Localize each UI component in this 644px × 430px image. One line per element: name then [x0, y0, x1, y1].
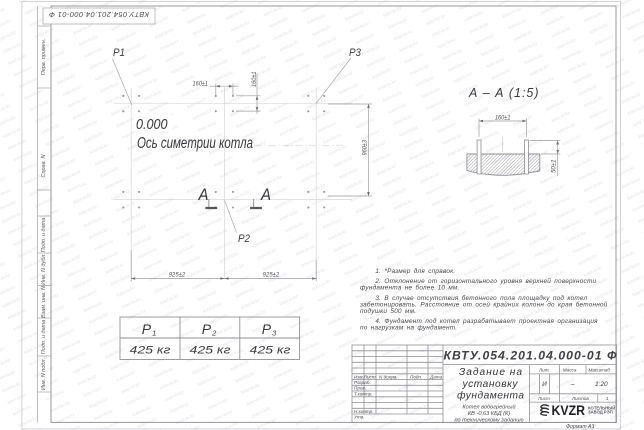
- svg-text:Масса: Масса: [563, 368, 577, 373]
- svg-text:925±2: 925±2: [263, 272, 280, 279]
- svg-text:Инв. N подл.: Инв. N подл.: [41, 358, 47, 390]
- svg-text:1: 1: [606, 396, 609, 401]
- svg-text:50±1: 50±1: [551, 159, 558, 173]
- svg-text:Подп.: Подп.: [410, 374, 422, 379]
- svg-text:P1: P1: [113, 47, 125, 59]
- svg-text:КВТУ.054.201.04.000-01 Ф: КВТУ.054.201.04.000-01 Ф: [444, 348, 617, 362]
- svg-text:425 кг: 425 кг: [130, 345, 172, 357]
- svg-text:0.000: 0.000: [136, 116, 168, 133]
- svg-text:Взам. инв. N: Взам. инв. N: [41, 286, 47, 318]
- svg-text:P3: P3: [349, 47, 362, 59]
- svg-text:Пров.: Пров.: [354, 386, 366, 391]
- svg-text:Утв.: Утв.: [354, 415, 364, 420]
- svg-text:160±1: 160±1: [251, 71, 258, 87]
- svg-text:1:20: 1:20: [595, 381, 608, 388]
- svg-text:KVZR: KVZR: [552, 403, 586, 418]
- svg-text:Формат А3: Формат А3: [566, 424, 594, 430]
- svg-text:Лит.: Лит.: [538, 368, 550, 373]
- svg-text:И: И: [542, 381, 547, 388]
- svg-text:1. *Размер для справок.: 1. *Размер для справок.: [375, 267, 455, 275]
- svg-text:Подп. и дата: Подп. и дата: [41, 320, 47, 354]
- svg-text:160±1: 160±1: [193, 80, 209, 87]
- svg-text:Котел водогрейный: Котел водогрейный: [462, 404, 515, 411]
- svg-text:Изм.Лист: Изм.Лист: [354, 374, 376, 379]
- svg-text:Задание на: Задание на: [459, 367, 522, 378]
- svg-text:фундамента не более 10 мм.: фундамента не более 10 мм.: [360, 284, 460, 292]
- svg-text:Инв. N дубл.: Инв. N дубл.: [41, 253, 47, 285]
- svg-text:–: –: [570, 381, 575, 388]
- svg-text:Разраб.: Разраб.: [354, 380, 371, 385]
- svg-text:160±1: 160±1: [495, 114, 511, 121]
- svg-text:А: А: [260, 186, 271, 204]
- svg-text:Перв. примен.: Перв. примен.: [41, 39, 47, 76]
- svg-text:425 кг: 425 кг: [250, 345, 292, 357]
- svg-text:925±2: 925±2: [169, 272, 186, 279]
- svg-text:КВ -0,63 КБД (К): КВ -0,63 КБД (К): [468, 411, 510, 417]
- svg-text:подушки 500 мм.: подушки 500 мм.: [360, 307, 416, 315]
- svg-text:Масштаб: Масштаб: [589, 368, 611, 373]
- svg-text:Листов: Листов: [571, 396, 589, 401]
- svg-text:Т.контр.: Т.контр.: [354, 392, 373, 397]
- svg-text:N докум.: N докум.: [379, 374, 398, 379]
- svg-text:Дата: Дата: [429, 374, 443, 379]
- svg-text:Подп. и дата: Подп. и дата: [41, 218, 47, 252]
- svg-text:установку: установку: [462, 379, 519, 390]
- svg-text:А: А: [198, 186, 209, 204]
- svg-text:Справ. N: Справ. N: [41, 154, 47, 177]
- svg-text:425 кг: 425 кг: [190, 345, 232, 357]
- svg-text:КВТУ.054.201.04.000-01 Ф: КВТУ.054.201.04.000-01 Ф: [49, 10, 149, 19]
- svg-text:по нагрузкам на фундамент.: по нагрузкам на фундамент.: [360, 324, 457, 332]
- svg-text:Ось симетрии котла: Ось симетрии котла: [137, 135, 253, 152]
- svg-text:960±3: 960±3: [361, 140, 368, 156]
- svg-text:А – А (1:5): А – А (1:5): [468, 86, 539, 100]
- svg-text:P2: P2: [238, 233, 250, 245]
- svg-text:Лист: Лист: [537, 396, 550, 401]
- svg-text:ЗАВОД РЭП: ЗАВОД РЭП: [588, 410, 613, 415]
- svg-text:по техническому заданию: по техническому заданию: [454, 418, 524, 424]
- svg-text:Н.контр.: Н.контр.: [354, 409, 373, 414]
- svg-text:фундамента: фундамента: [457, 389, 524, 401]
